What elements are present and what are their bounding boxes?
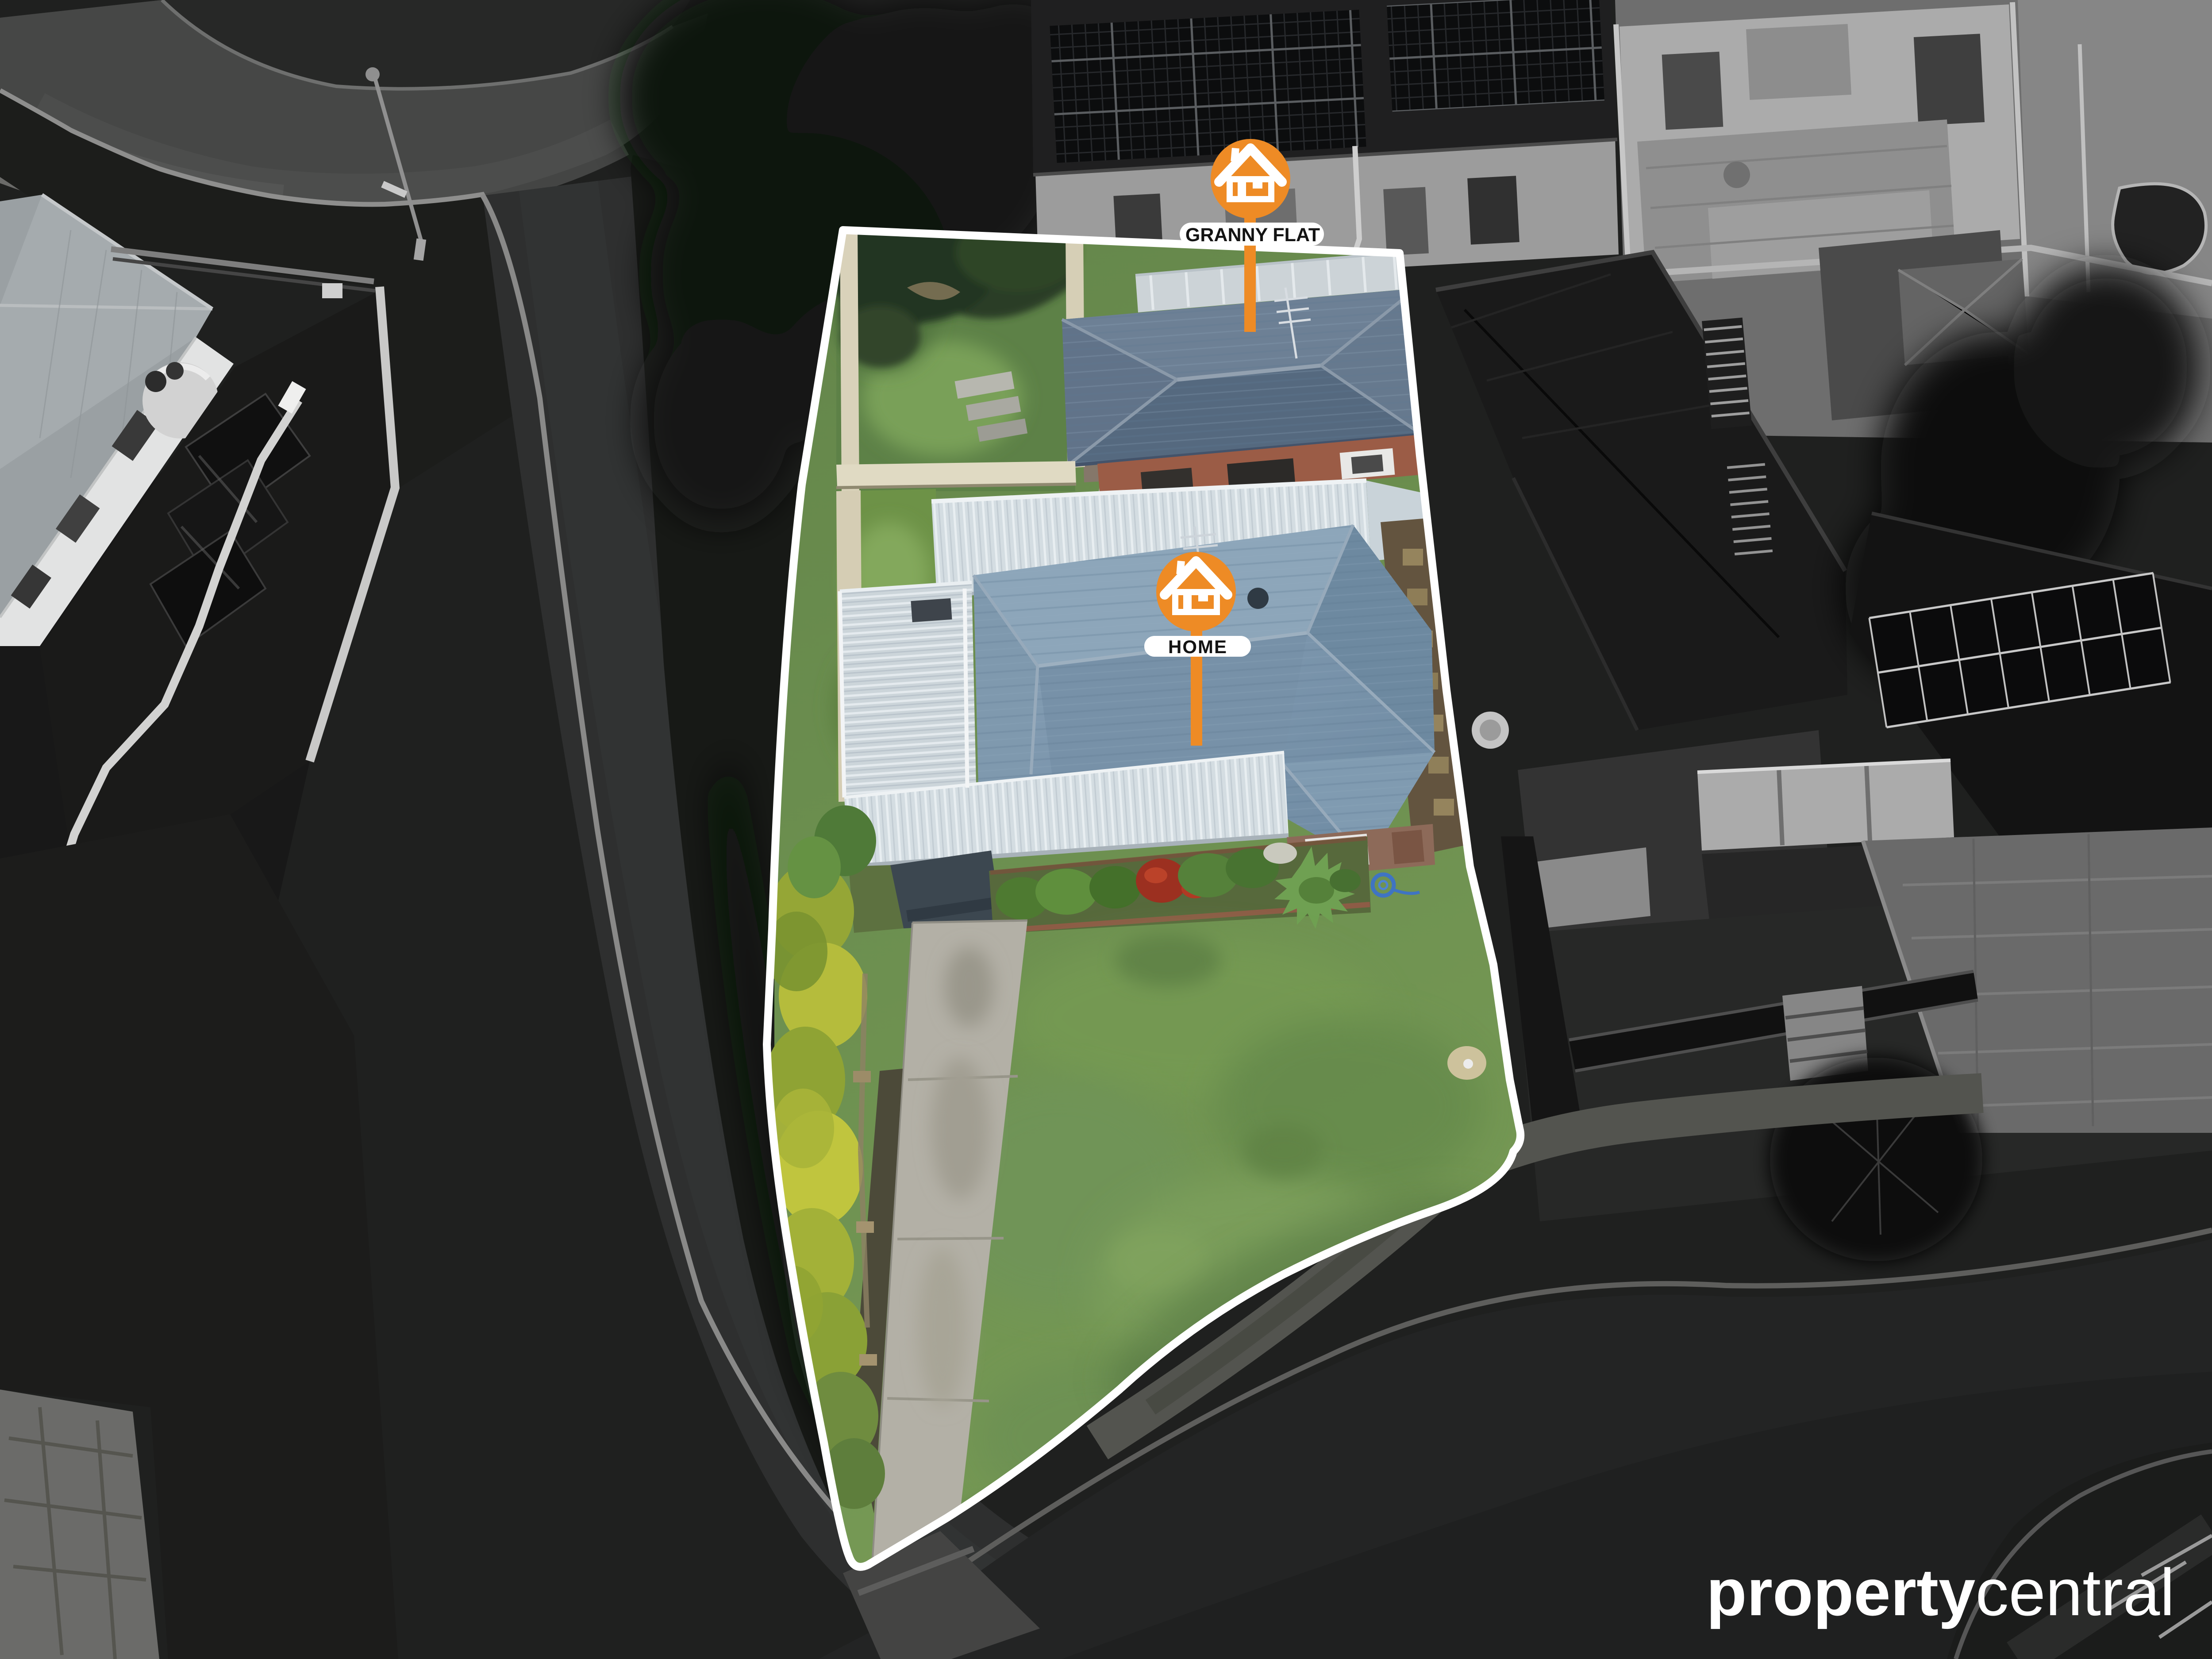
- svg-text:HOME: HOME: [1168, 636, 1227, 657]
- svg-text:propertycentral: propertycentral: [1706, 1555, 2175, 1629]
- svg-text:GRANNY FLAT: GRANNY FLAT: [1185, 224, 1320, 246]
